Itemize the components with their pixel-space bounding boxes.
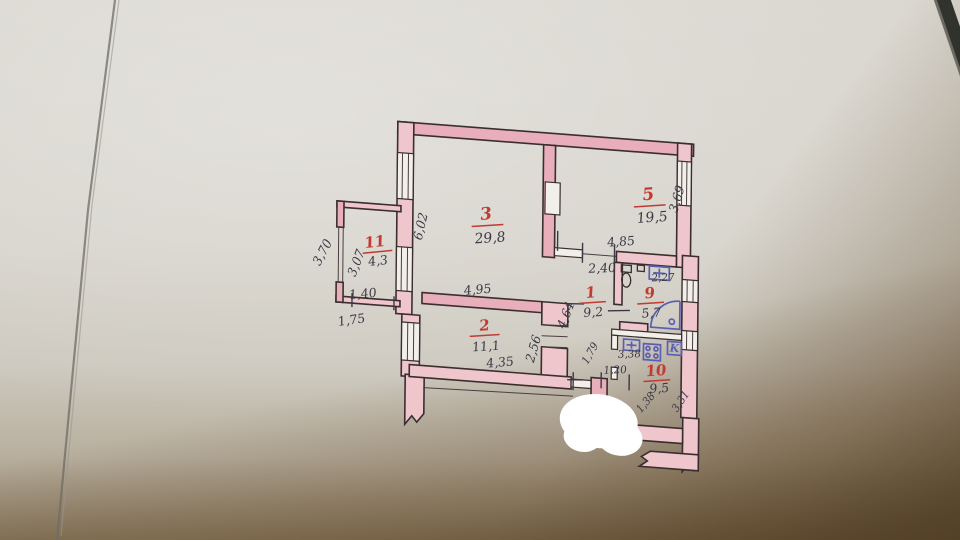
room-number: 11 xyxy=(363,232,386,252)
room-label-1: 1 9,2 xyxy=(577,283,608,321)
dim-balcony-inner: 3,07 xyxy=(344,247,368,279)
room-area: 9,2 xyxy=(582,304,604,320)
toilet-bowl-icon xyxy=(622,273,631,288)
balcony-glazing-line xyxy=(338,227,339,282)
ventilation-niche xyxy=(545,182,560,215)
balcony-corner-bottom xyxy=(336,282,343,303)
dim-corridor-door: 2,40 xyxy=(587,260,617,276)
window-room3-lower xyxy=(396,246,412,291)
small-box-icon xyxy=(637,265,644,272)
room-label-3: 3 29,8 xyxy=(469,203,507,247)
dim-balcony-outer: 3,70 xyxy=(309,236,335,268)
room-label-2: 2 11,1 xyxy=(467,315,501,354)
window-room2 xyxy=(401,322,419,361)
room-label-11: 11 4,3 xyxy=(360,231,395,269)
wall-room5-corridor-thin xyxy=(554,248,582,258)
room-number: 9 xyxy=(644,284,657,303)
dim-bath-width: 2,27 xyxy=(650,272,676,285)
room-area: 4,3 xyxy=(366,252,389,269)
room-number: 2 xyxy=(477,316,491,335)
room-area: 11,1 xyxy=(471,338,500,355)
door-sill-room5 xyxy=(582,254,616,257)
wall-corridor-kitchen-a xyxy=(611,335,617,349)
dim-room5-bottom: 4,85 xyxy=(605,233,636,250)
paper-edge-lines xyxy=(57,0,960,540)
room-label-10: 10 9,5 xyxy=(641,361,672,397)
room-number: 10 xyxy=(645,361,669,380)
room-label-9: 9 5,7 xyxy=(635,283,666,321)
leader-dash xyxy=(608,309,630,313)
wall-left-stub-break xyxy=(405,374,425,425)
floor-plan-drawing: K 3 29,8 5 19 xyxy=(0,0,960,540)
balcony-wall-top xyxy=(337,201,401,212)
dim-balcony-bottom: 1,75 xyxy=(336,310,366,329)
dim-room2-top: 4,95 xyxy=(462,281,493,298)
kitchen-marker: K xyxy=(667,341,681,355)
floor-plan-photo: K 3 29,8 5 19 xyxy=(0,0,960,540)
plan: K 3 29,8 5 19 xyxy=(307,115,701,473)
window-right-mid-2 xyxy=(681,330,697,350)
room-area: 5,7 xyxy=(641,305,663,321)
dim-kitchen-top: 3,38 xyxy=(617,348,642,361)
room-area: 19,5 xyxy=(636,209,669,227)
room-number: 1 xyxy=(584,283,597,302)
room-number: 3 xyxy=(479,204,493,225)
dim-hall-width: 1,79 xyxy=(580,340,602,366)
room-number: 5 xyxy=(641,185,655,206)
dim-kitchen-door: 1,20 xyxy=(603,364,628,377)
wall-entry-lower-break xyxy=(639,450,698,471)
room-area: 29,8 xyxy=(473,229,507,247)
room-label-5: 5 19,5 xyxy=(631,184,669,227)
window-room3-upper xyxy=(397,152,413,199)
window-right-mid-1 xyxy=(682,279,698,302)
dim-room2-bottom: 4,35 xyxy=(484,353,515,370)
balcony-corner-top xyxy=(337,201,344,228)
correction-fluid-blob xyxy=(559,391,643,457)
stove-icon xyxy=(643,344,660,361)
dim-balcony-width: 1,40 xyxy=(348,285,378,302)
kitchen-letter: K xyxy=(669,341,680,355)
